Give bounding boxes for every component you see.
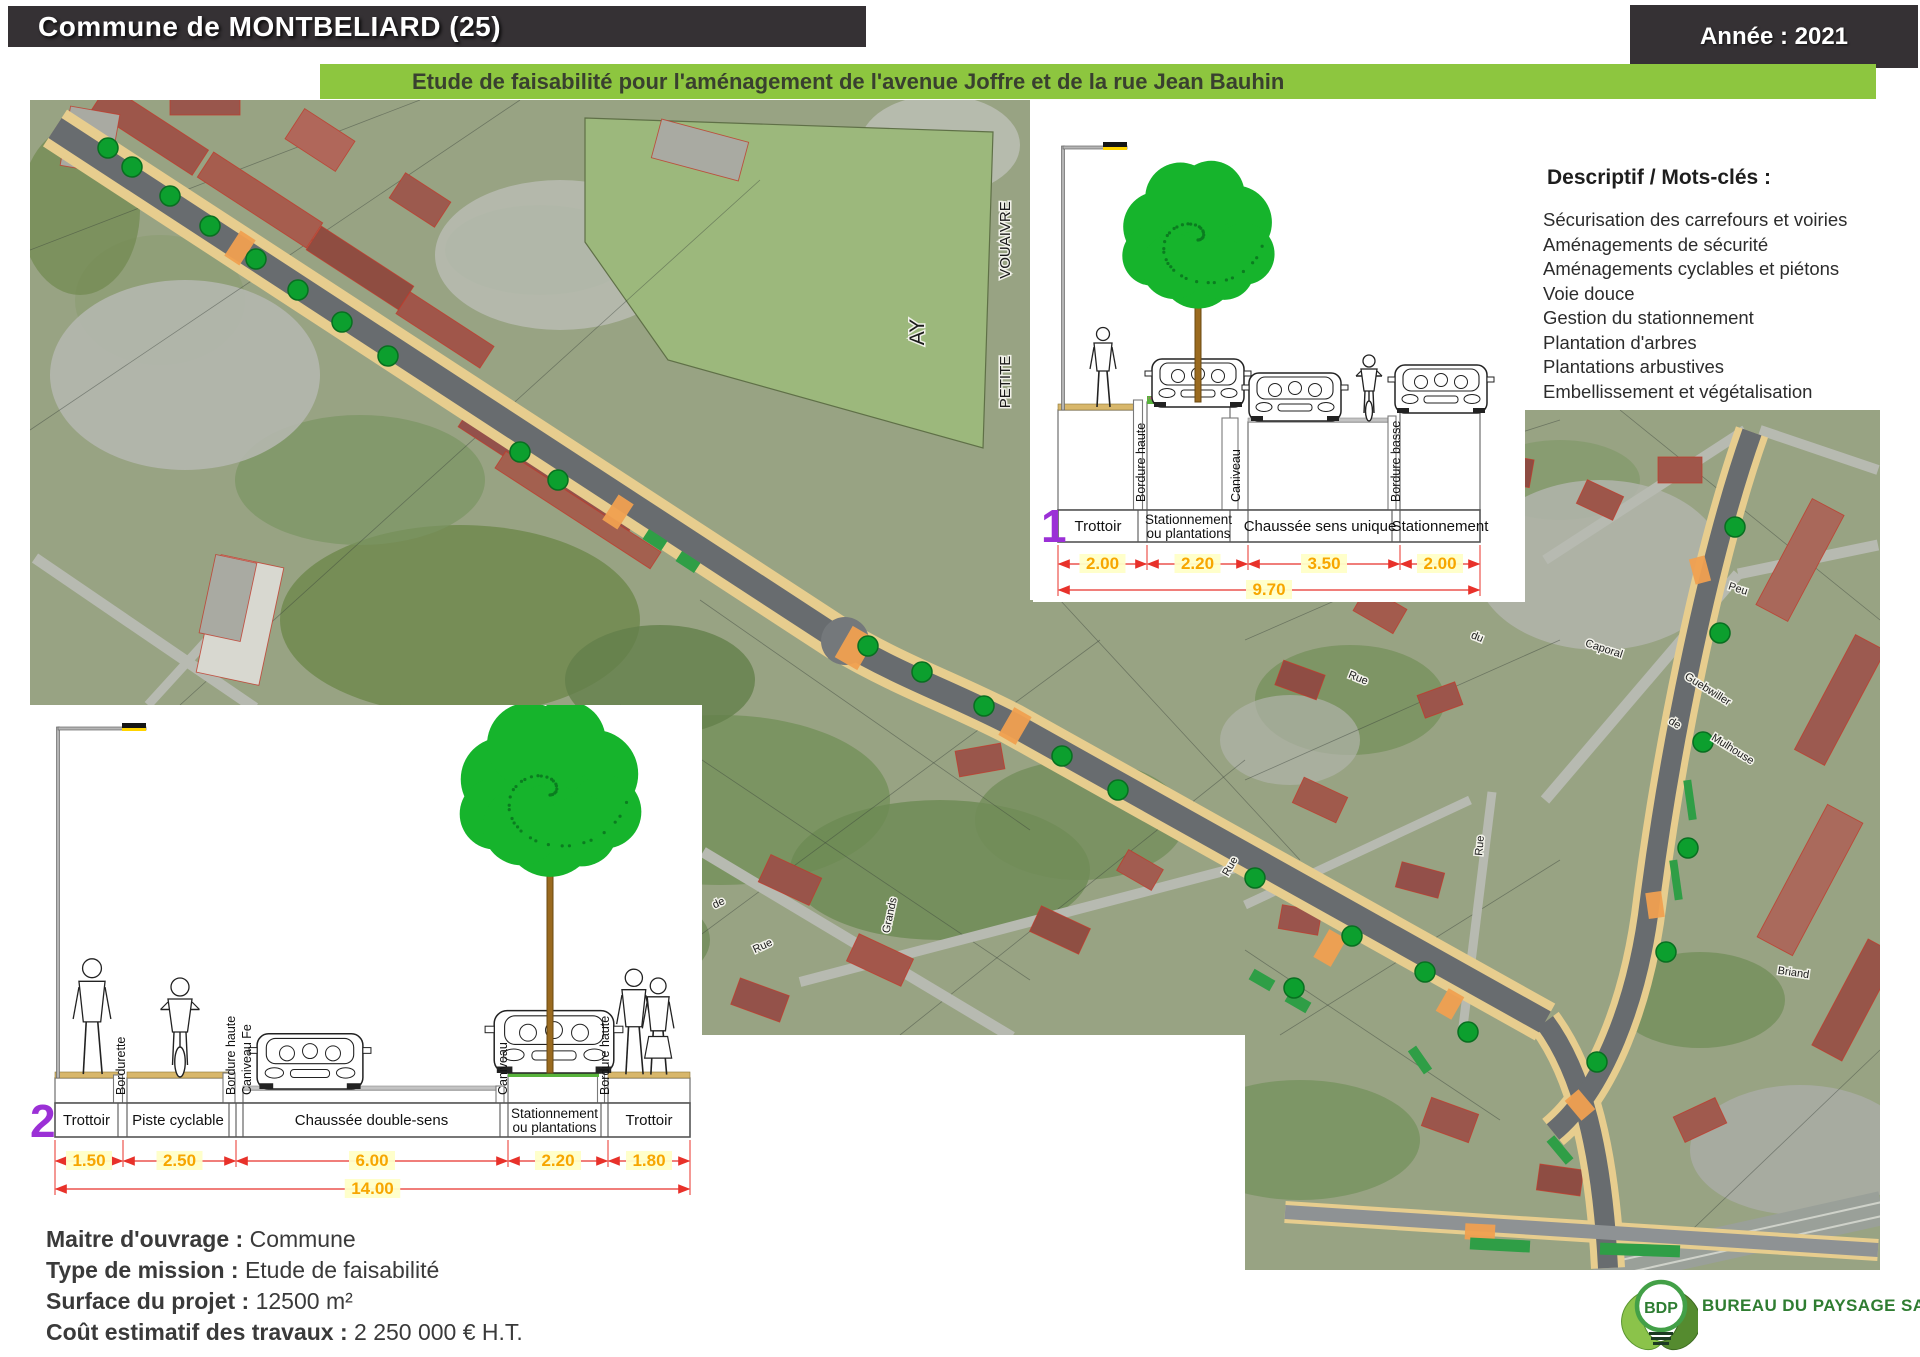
svg-text:ou plantations: ou plantations: [512, 1120, 596, 1135]
info-line: Coût estimatif des travaux : 2 250 000 €…: [46, 1317, 523, 1348]
svg-text:Caniveau: Caniveau: [1229, 449, 1243, 502]
svg-text:Chaussée sens unique: Chaussée sens unique: [1244, 518, 1397, 535]
svg-text:Trottoir: Trottoir: [1075, 518, 1122, 535]
svg-text:1.50: 1.50: [72, 1151, 105, 1170]
svg-text:Stationnement: Stationnement: [1392, 518, 1490, 535]
svg-text:AY: AY: [906, 319, 929, 345]
svg-text:9.70: 9.70: [1252, 580, 1285, 599]
bdp-bulb-leaves-icon: BDP: [1598, 1266, 1698, 1357]
keyword-item: Sécurisation des carrefours et voiries: [1543, 208, 1915, 233]
svg-text:3.50: 3.50: [1307, 554, 1340, 573]
info-line: Maitre d'ouvrage : Commune: [46, 1224, 523, 1255]
company-name: BUREAU DU PAYSAGE SAS: [1702, 1296, 1920, 1316]
keywords-block: Descriptif / Mots-clés : Sécurisation de…: [1543, 166, 1915, 404]
keyword-item: Aménagements de sécurité: [1543, 233, 1915, 258]
svg-text:ou plantations: ou plantations: [1146, 526, 1230, 541]
svg-text:Bordure haute: Bordure haute: [598, 1016, 612, 1095]
svg-text:Stationnement: Stationnement: [511, 1106, 598, 1121]
svg-text:PETITE: PETITE: [997, 356, 1014, 409]
svg-text:Bordure haute: Bordure haute: [224, 1016, 238, 1095]
info-line: Type de mission : Etude de faisabilité: [46, 1255, 523, 1286]
svg-text:Bordurette: Bordurette: [114, 1037, 128, 1095]
keyword-item: Voie douce: [1543, 282, 1915, 307]
svg-text:2.20: 2.20: [1181, 554, 1214, 573]
svg-text:1.80: 1.80: [632, 1151, 665, 1170]
keywords-list: Sécurisation des carrefours et voiriesAm…: [1543, 208, 1915, 404]
svg-text:2: 2: [30, 1095, 56, 1147]
svg-text:1: 1: [1041, 500, 1067, 552]
svg-text:Bordure basse: Bordure basse: [1389, 421, 1403, 502]
cross-section-1-diagram: TrottoirStationnementou plantationsChaus…: [1033, 100, 1525, 602]
keyword-item: Plantations arbustives: [1543, 355, 1915, 380]
cross-section-2-diagram: TrottoirPiste cyclableChaussée double-se…: [30, 705, 702, 1237]
keyword-item: Plantation d'arbres: [1543, 331, 1915, 356]
svg-text:2.00: 2.00: [1086, 554, 1119, 573]
svg-text:VOUAIVRE: VOUAIVRE: [997, 201, 1014, 279]
svg-text:BDP: BDP: [1644, 1300, 1678, 1317]
keywords-title: Descriptif / Mots-clés :: [1547, 166, 1915, 190]
svg-text:14.00: 14.00: [351, 1179, 394, 1198]
svg-text:Caniveau: Caniveau: [496, 1042, 510, 1095]
project-sheet: Commune de MONTBELIARD (25) Année : 2021…: [0, 0, 1920, 1357]
info-line: Surface du projet : 12500 m²: [46, 1286, 523, 1317]
svg-text:Bordure haute: Bordure haute: [1134, 423, 1148, 502]
svg-text:Trottoir: Trottoir: [63, 1112, 110, 1129]
svg-text:Trottoir: Trottoir: [626, 1112, 673, 1129]
svg-text:Piste cyclable: Piste cyclable: [132, 1112, 224, 1129]
company-logo: BDP BUREAU DU PAYSAGE SAS: [1598, 1266, 1920, 1357]
keyword-item: Aménagements cyclables et piétons: [1543, 257, 1915, 282]
svg-text:2.50: 2.50: [163, 1151, 196, 1170]
svg-text:2.00: 2.00: [1423, 554, 1456, 573]
keyword-item: Gestion du stationnement: [1543, 306, 1915, 331]
svg-text:6.00: 6.00: [355, 1151, 388, 1170]
project-info: Maitre d'ouvrage : CommuneType de missio…: [46, 1224, 523, 1348]
svg-text:Chaussée double-sens: Chaussée double-sens: [295, 1112, 448, 1129]
svg-text:Caniveau Fe: Caniveau Fe: [240, 1024, 254, 1095]
svg-text:2.20: 2.20: [541, 1151, 574, 1170]
svg-text:Stationnement: Stationnement: [1145, 512, 1232, 527]
svg-text:Rue: Rue: [1473, 835, 1487, 856]
keyword-item: Embellissement et végétalisation: [1543, 380, 1915, 405]
